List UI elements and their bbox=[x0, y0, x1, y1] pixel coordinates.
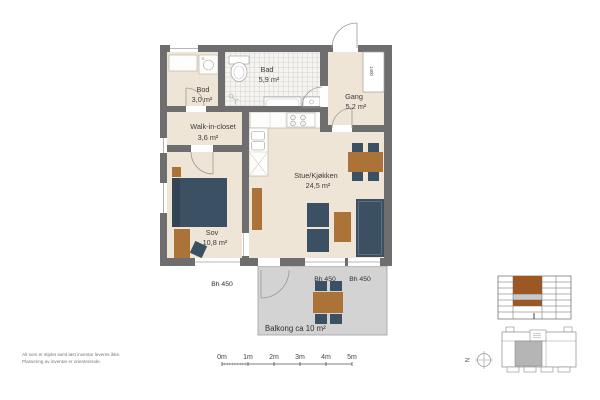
dining-chair bbox=[368, 143, 379, 152]
coffee-table bbox=[334, 212, 351, 242]
scale-tick-2: 2m bbox=[269, 354, 279, 361]
scale-tick-5: 5m bbox=[347, 354, 357, 361]
floor-plan-page: 1400 Bod 3,0 m² Bad 5,9 m² Gang 5,2 m² W… bbox=[0, 0, 600, 400]
entrance-opening bbox=[333, 45, 358, 52]
wall-right bbox=[384, 45, 392, 266]
balcony-chair bbox=[330, 314, 342, 324]
dining-chair bbox=[352, 143, 363, 152]
sink-basin bbox=[252, 142, 265, 151]
dining-chair bbox=[368, 172, 379, 181]
room-name-bod: Bod bbox=[197, 85, 210, 94]
scale-tick-3: 3m bbox=[295, 354, 305, 361]
scale-tick-4: 4m bbox=[321, 354, 331, 361]
floor-plan-drawing: 1400 Bod 3,0 m² Bad 5,9 m² Gang 5,2 m² W… bbox=[0, 0, 600, 400]
sill-label-balcony-left: Bh 450 bbox=[314, 276, 336, 283]
keyplan-site bbox=[502, 327, 576, 372]
washing-machine-icon bbox=[199, 55, 218, 74]
site-balcony-top-left bbox=[506, 327, 514, 332]
door-opening-bad bbox=[320, 86, 328, 107]
door-opening-bod bbox=[186, 106, 206, 112]
sink-basin bbox=[252, 132, 265, 141]
bod-fixtures bbox=[169, 55, 218, 74]
toilet-icon bbox=[231, 63, 247, 82]
burner bbox=[301, 115, 306, 120]
dining-chair bbox=[352, 172, 363, 181]
scale-bar: 0m 1m 2m 3m 4m 5m bbox=[217, 354, 357, 366]
sideboard bbox=[252, 188, 262, 230]
nightstand bbox=[172, 167, 181, 177]
room-name-sov: Sov bbox=[206, 228, 219, 237]
sofa-seat bbox=[307, 203, 329, 227]
facade-highlight-lower bbox=[513, 300, 542, 306]
room-area-stue: 24,5 m² bbox=[306, 181, 331, 190]
balcony-door-opening bbox=[258, 258, 280, 266]
burner bbox=[301, 121, 306, 126]
room-area-wic: 3,6 m² bbox=[198, 133, 219, 142]
scale-tick-0: 0m bbox=[217, 354, 227, 361]
room-name-bad: Bad bbox=[261, 65, 274, 74]
wall-left bbox=[160, 45, 167, 266]
sill-label-balcony-right: Bh 450 bbox=[349, 276, 371, 283]
wall-bod-bad bbox=[218, 52, 225, 106]
site-balcony-top-right bbox=[564, 327, 572, 332]
room-name-gang: Gang bbox=[345, 92, 363, 101]
footnotes: Alt som er stiplet samt løst inventar le… bbox=[22, 352, 120, 364]
dining-table bbox=[348, 152, 383, 172]
room-name-stue: Stue/Kjøkken bbox=[294, 171, 337, 180]
dresser bbox=[174, 229, 190, 259]
balcony-table bbox=[313, 292, 343, 313]
room-area-bad: 5,9 m² bbox=[259, 75, 280, 84]
keyplan-facade bbox=[498, 276, 571, 319]
facade-muted-band bbox=[513, 294, 542, 300]
burner bbox=[291, 115, 296, 120]
north-label: N bbox=[463, 358, 469, 362]
shaft-dimension-label: 1400 bbox=[369, 66, 374, 76]
footnote-line-1: Alt som er stiplet samt løst inventar le… bbox=[22, 352, 120, 357]
sill-label-sov: Bh 450 bbox=[211, 281, 233, 288]
site-balcony-bottom bbox=[558, 367, 570, 372]
burner bbox=[291, 121, 296, 126]
balcony-chair bbox=[315, 314, 327, 324]
compass-cross bbox=[475, 351, 493, 369]
shaft-niche: 1400 bbox=[363, 52, 384, 92]
site-balcony-bottom bbox=[524, 367, 536, 372]
room-name-balkong: Balkong ca 10 m² bbox=[265, 324, 326, 333]
sliding-door-sov bbox=[242, 233, 249, 256]
facade-highlight-upper bbox=[513, 276, 542, 294]
bed bbox=[172, 178, 227, 227]
entrance-door-swing bbox=[332, 23, 357, 48]
site-unit-highlight bbox=[515, 341, 542, 366]
compass: N bbox=[463, 351, 493, 369]
scale-tick-1: 1m bbox=[243, 354, 253, 361]
room-name-wic: Walk-in-closet bbox=[190, 122, 236, 131]
door-opening-wic bbox=[191, 145, 213, 152]
site-balcony-bottom bbox=[541, 367, 553, 372]
site-balcony-bottom bbox=[507, 367, 519, 372]
footnote-line-2: Plassering av inventar er orienterende. bbox=[22, 359, 101, 364]
sofa-chaise bbox=[356, 199, 384, 257]
storage-shelf bbox=[169, 55, 197, 71]
bed-headboard bbox=[172, 178, 180, 227]
room-area-bod: 3,0 m² bbox=[192, 95, 213, 104]
door-opening-gang bbox=[332, 125, 352, 132]
room-area-sov: 10,8 m² bbox=[203, 238, 228, 247]
room-area-gang: 5,2 m² bbox=[346, 102, 367, 111]
sofa-seat bbox=[307, 229, 329, 252]
